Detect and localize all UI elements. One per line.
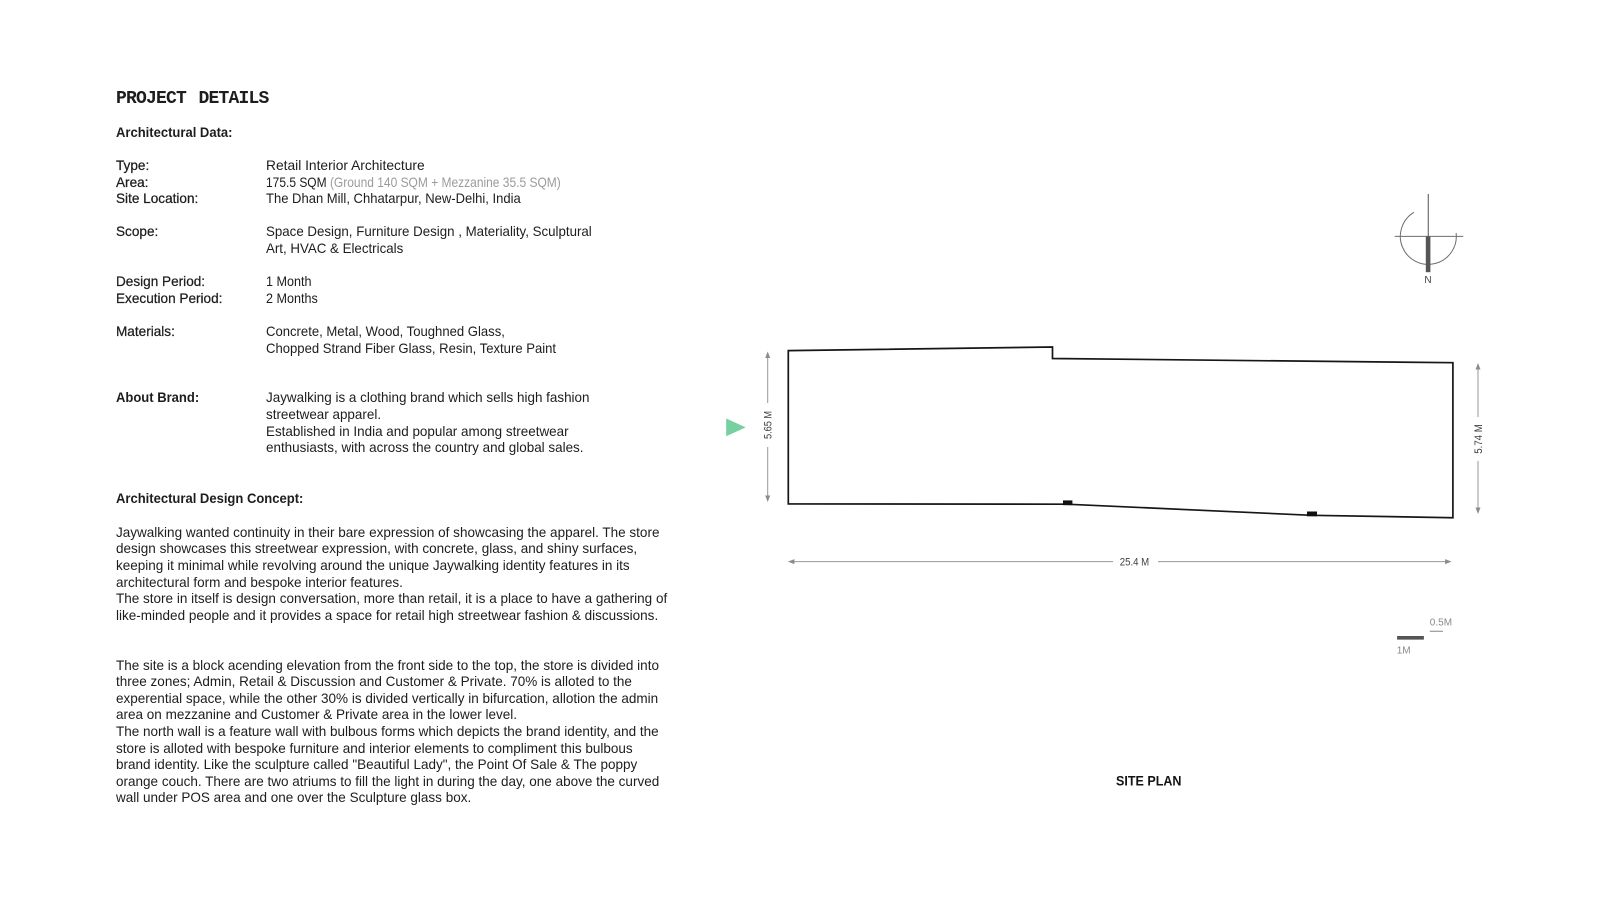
svg-text:0.5M: 0.5M [1430,618,1452,629]
svg-text:1M: 1M [1397,646,1411,657]
svg-text:25.4 M: 25.4 M [1120,557,1149,569]
svg-text:5.74 M: 5.74 M [1473,424,1485,453]
svg-text:5.65 M: 5.65 M [763,411,775,439]
svg-text:N: N [1424,275,1431,286]
svg-text:SITE PLAN: SITE PLAN [1116,773,1182,789]
